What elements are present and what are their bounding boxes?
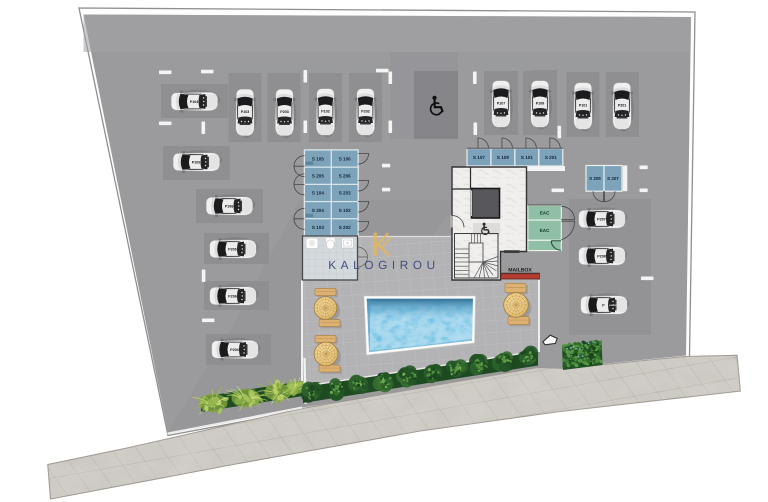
svg-text:S 105: S 105 — [312, 156, 324, 161]
svg-text:S 207: S 207 — [607, 176, 619, 181]
svg-text:P206: P206 — [228, 294, 236, 298]
svg-text:S 206: S 206 — [339, 174, 351, 179]
svg-text:S 202: S 202 — [339, 225, 351, 230]
svg-text:VISITOR: VISITOR — [609, 304, 618, 307]
svg-text:S 106: S 106 — [339, 156, 351, 161]
svg-text:KALOGIROU: KALOGIROU — [328, 258, 440, 272]
svg-text:P108: P108 — [536, 102, 544, 106]
svg-text:EAC: EAC — [540, 228, 550, 233]
svg-text:P205: P205 — [228, 247, 236, 251]
svg-text:S 107: S 107 — [473, 155, 485, 160]
svg-text:S 104: S 104 — [312, 191, 324, 196]
svg-text:S 102: S 102 — [339, 208, 351, 213]
svg-text:S 103: S 103 — [312, 225, 324, 230]
svg-text:P102: P102 — [321, 110, 329, 114]
svg-text:MAILBOX: MAILBOX — [508, 268, 532, 274]
svg-text:S 205: S 205 — [312, 174, 324, 179]
svg-text:P207: P207 — [597, 217, 605, 221]
svg-text:P104: P104 — [190, 100, 198, 104]
svg-text:S 201: S 201 — [545, 155, 557, 160]
svg-text:S 108: S 108 — [497, 155, 509, 160]
svg-text:P106: P106 — [225, 204, 233, 208]
svg-text:P203: P203 — [280, 110, 288, 114]
svg-text:P208: P208 — [597, 254, 605, 258]
svg-text:P101: P101 — [579, 104, 587, 108]
svg-text:S 203: S 203 — [339, 191, 351, 196]
svg-text:P103: P103 — [241, 110, 249, 114]
svg-text:P201: P201 — [618, 104, 626, 108]
svg-text:P202: P202 — [361, 110, 369, 114]
svg-text:EAC: EAC — [540, 211, 550, 216]
svg-text:S 204: S 204 — [312, 208, 324, 213]
svg-text:P204: P204 — [230, 348, 238, 352]
svg-text:P107: P107 — [497, 102, 505, 106]
svg-text:S 101: S 101 — [521, 155, 533, 160]
svg-text:P105: P105 — [192, 160, 200, 164]
svg-text:S 208: S 208 — [589, 176, 601, 181]
